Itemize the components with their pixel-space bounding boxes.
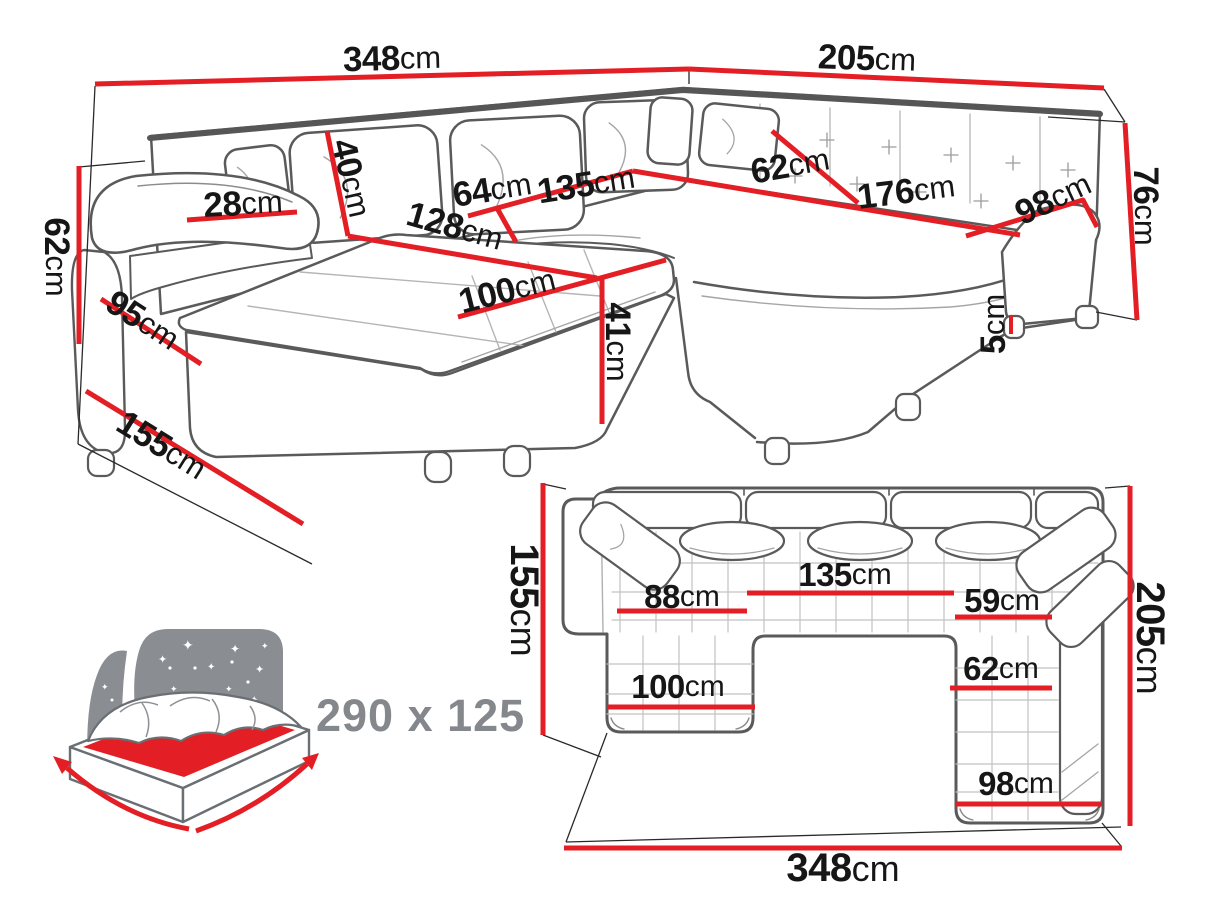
dim-plan-right-chaise-width: 62cm [963, 650, 1039, 687]
dim-front-right-width: 205cm [817, 37, 917, 79]
dim-unit: cm [785, 141, 832, 183]
svg-text:✦: ✦ [182, 638, 194, 654]
inner-corner-edge [676, 278, 755, 438]
dim-value: 348 [786, 846, 851, 890]
dim-front-total-width: 348cm [342, 37, 441, 79]
dim-value: 76 [1127, 166, 1166, 204]
dim-plan-left-depth: 155cm [502, 543, 546, 656]
corner-pillow [647, 97, 694, 166]
dim-unit: cm [1014, 767, 1054, 800]
foot [425, 452, 451, 482]
dim-unit: cm [504, 609, 545, 657]
dim-unit: cm [685, 670, 725, 703]
dim-plan-chaise-inner: 88cm [644, 578, 720, 615]
dim-unit: cm [852, 848, 900, 889]
dim-value: 28 [202, 184, 242, 225]
dim-unit: cm [680, 580, 720, 613]
dim-front-armrest-top: 28cm [202, 181, 283, 224]
right-base-edge [757, 318, 1088, 444]
dim-front-back-height: 76cm [1127, 166, 1166, 245]
sofa-bed-icon: ✦✦ ✦✦ ✦✦ ✦✦ ✦✦ ✦✦ ✦✦ ✦✦ ✦ [53, 629, 525, 831]
dim-value: 62 [38, 217, 77, 255]
guide-line [1096, 312, 1137, 320]
dim-value: 41 [599, 302, 638, 340]
guide-line [1104, 89, 1125, 122]
svg-text:✦: ✦ [207, 662, 215, 673]
dim-value: 98 [978, 765, 1014, 802]
dim-value: 205 [817, 37, 875, 78]
svg-text:✦: ✦ [101, 683, 109, 693]
dim-value: 135 [798, 556, 852, 593]
foot [504, 446, 530, 476]
dim-unit: cm [912, 168, 957, 208]
guide-line [566, 733, 607, 842]
dim-unit: cm [591, 159, 637, 200]
front-view-sketch [72, 88, 1100, 482]
svg-text:✦: ✦ [261, 642, 269, 652]
dim-plan-right-inner: 59cm [964, 582, 1040, 619]
dim-value: 155 [502, 543, 546, 608]
dim-front-leg-height: 5cm [974, 294, 1013, 354]
dim-plan-middle-width: 135cm [798, 556, 892, 593]
dim-front-seat-height: 41cm [599, 302, 638, 381]
dim-unit: cm [601, 340, 636, 381]
dim-unit: cm [999, 652, 1039, 685]
dim-value: 88 [644, 578, 680, 615]
dim-unit: cm [874, 41, 917, 77]
dim-unit: cm [1000, 584, 1040, 617]
dim-value: 348 [342, 38, 400, 78]
plan-seat-pillows [680, 522, 1040, 560]
dim-unit: cm [1129, 204, 1164, 245]
svg-text:✦: ✦ [255, 663, 264, 676]
dim-value: 176 [855, 171, 916, 217]
dim-value: 62 [963, 650, 999, 687]
svg-text:✦: ✦ [158, 653, 167, 666]
foot [896, 394, 920, 420]
dim-plan-chaise-width: 100cm [631, 668, 725, 705]
guide-line [79, 161, 145, 167]
guide-line [543, 484, 566, 489]
dim-unit: cm [240, 183, 283, 220]
dim-unit: cm [976, 294, 1011, 335]
dim-value: 5 [974, 335, 1013, 354]
foot [1076, 306, 1098, 328]
dim-value: 62 [748, 146, 792, 191]
dim-value: 59 [964, 582, 1000, 619]
sleeping-size-label: 290 x 125 [316, 690, 525, 741]
dim-unit: cm [488, 166, 534, 207]
diagram-canvas: 348cm 205cm 76cm 62cm 95cm 155cm 28cm 40… [0, 0, 1214, 911]
dim-plan-total-width: 348cm [786, 846, 899, 890]
plan-back-cushion [891, 492, 1031, 528]
guide-line [566, 827, 1121, 842]
dim-front-armrest-height: 62cm [38, 217, 77, 296]
svg-text:✦: ✦ [225, 685, 233, 695]
dim-value: 205 [1128, 581, 1172, 646]
dim-value: 100 [631, 668, 685, 705]
foot [88, 450, 114, 476]
dim-unit: cm [1130, 647, 1171, 695]
guide-line [543, 735, 601, 757]
guide-line [1105, 486, 1130, 488]
dim-unit: cm [399, 39, 441, 75]
svg-text:✦: ✦ [230, 642, 240, 656]
foot [765, 438, 789, 464]
dim-unit: cm [852, 558, 892, 591]
dim-plan-right-depth: 205cm [1128, 581, 1172, 694]
dim-unit: cm [40, 255, 75, 296]
dim-plan-right-chaise-length: 98cm [978, 765, 1054, 802]
sofa-dimensions-svg: 348cm 205cm 76cm 62cm 95cm 155cm 28cm 40… [0, 0, 1214, 911]
